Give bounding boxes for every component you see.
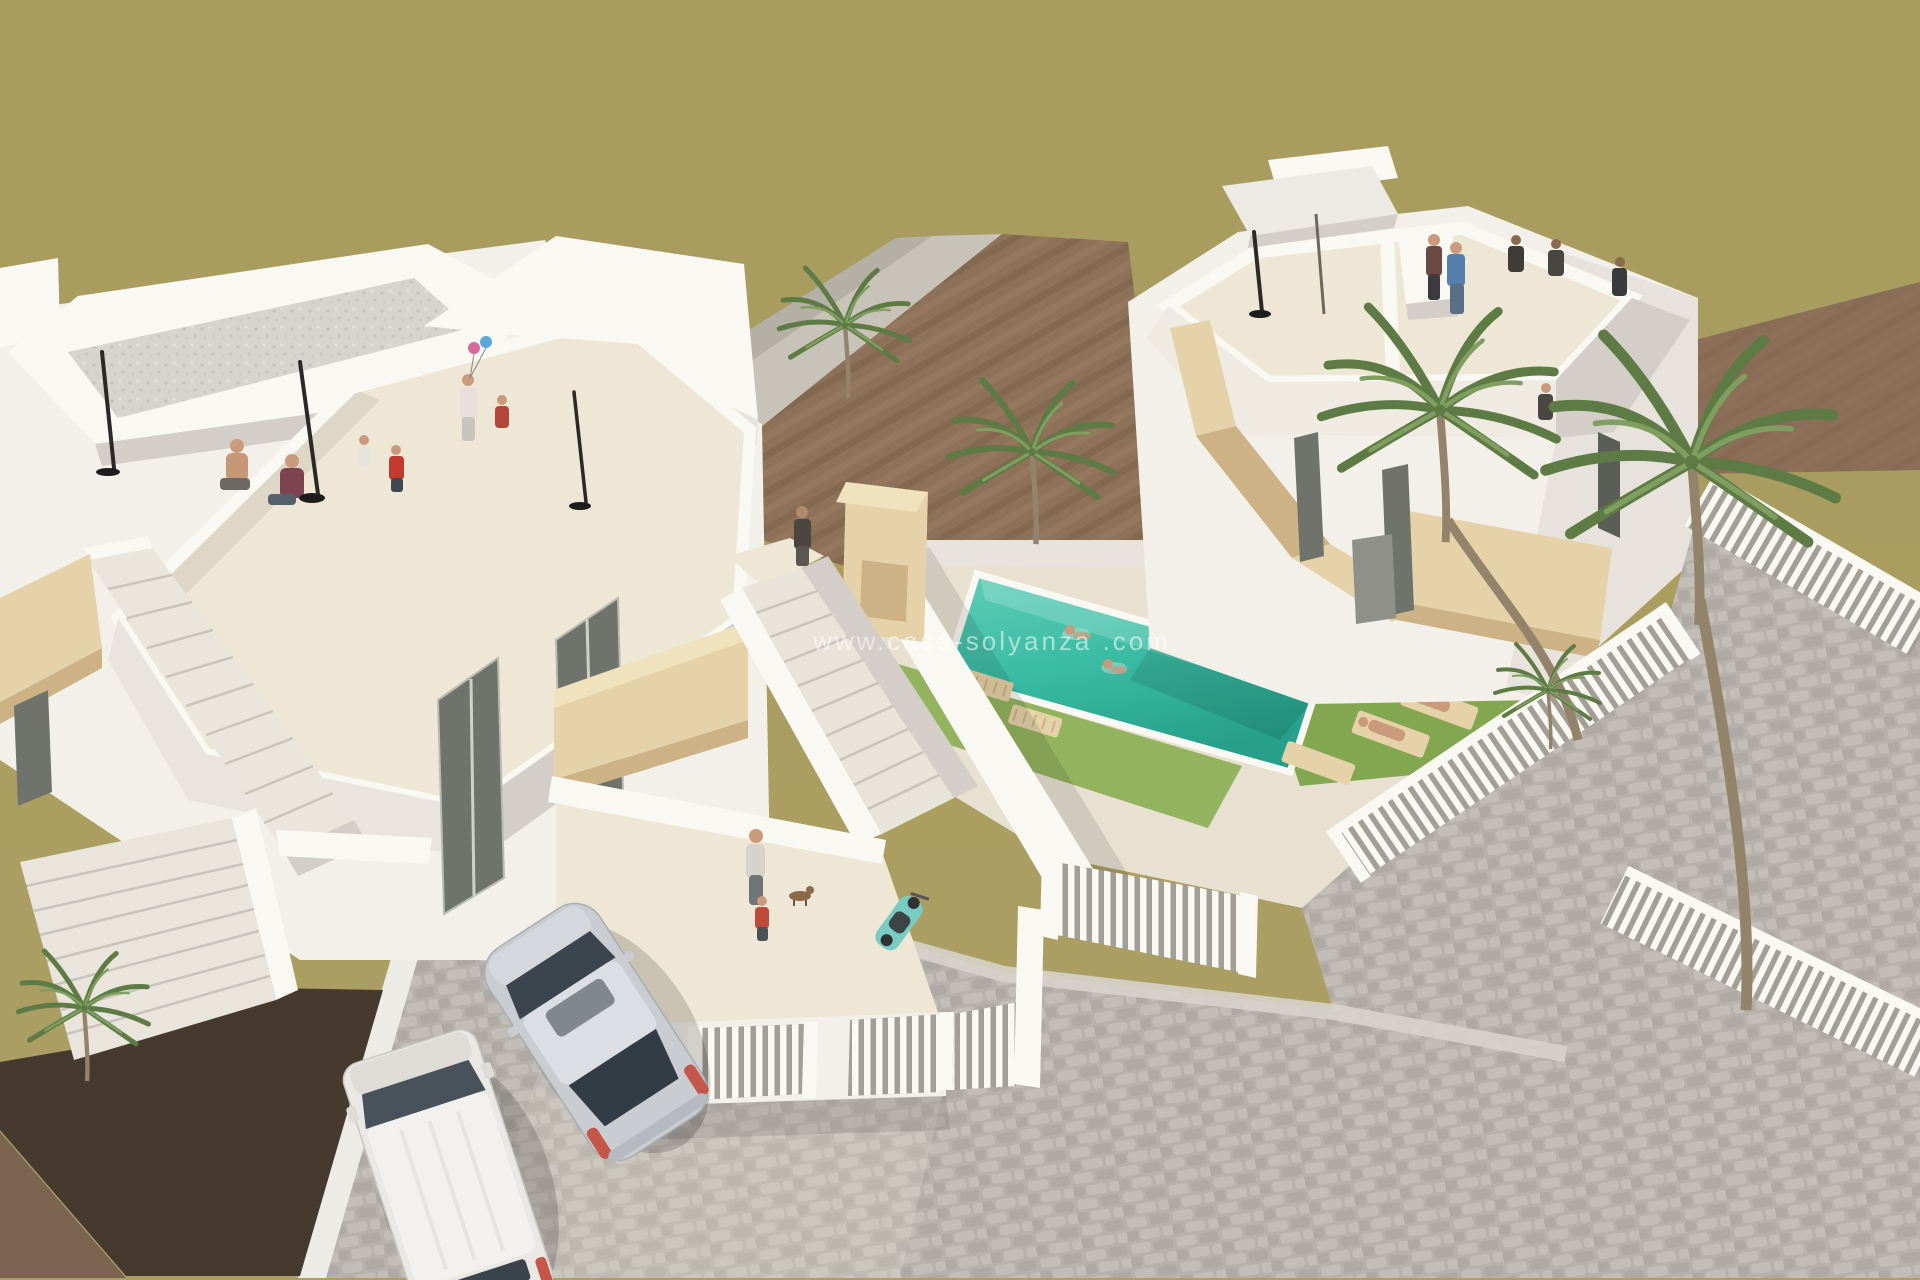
villa-render-scene: www.casa-solyanza .com <box>0 0 1920 1280</box>
window <box>1598 432 1620 538</box>
window <box>14 690 52 806</box>
ground-door <box>1352 534 1396 624</box>
stair-tower-inner <box>860 560 908 622</box>
umbrella-base <box>1249 310 1271 318</box>
watermark-text: www.casa-solyanza .com <box>812 626 1171 656</box>
person <box>495 395 509 428</box>
render-image: www.casa-solyanza .com <box>0 0 1920 1280</box>
